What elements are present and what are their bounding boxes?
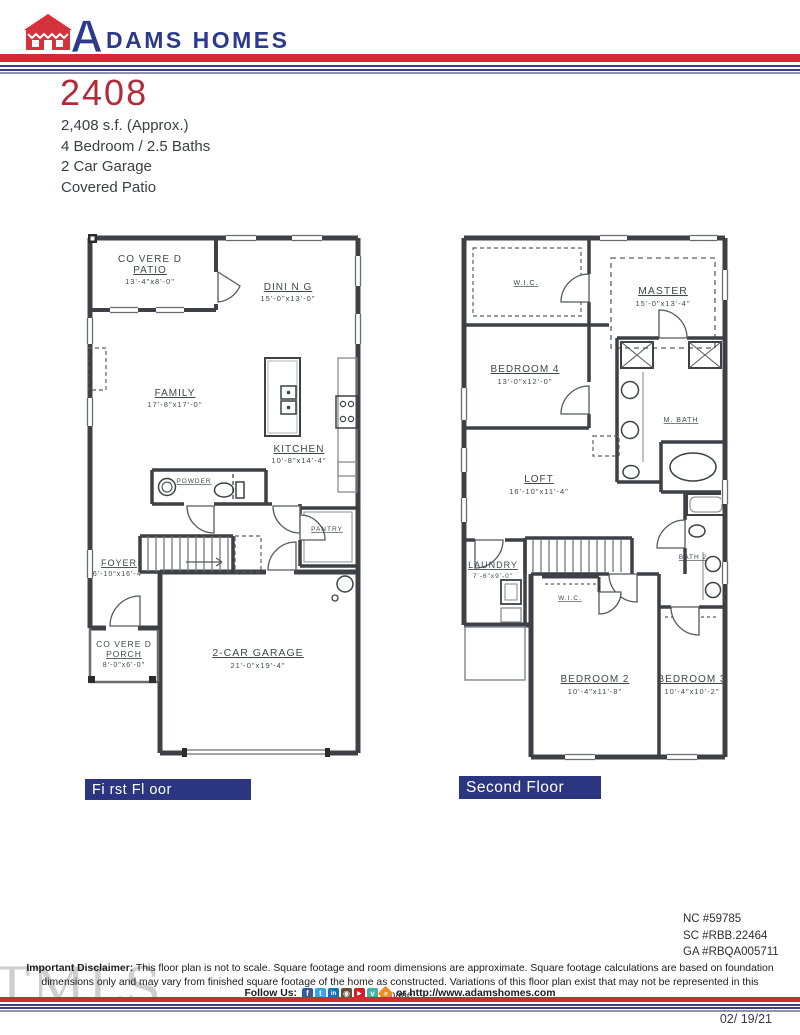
footer-stripes	[0, 997, 800, 1012]
first-floor-windows	[86, 234, 362, 757]
mbath-fixtures	[621, 342, 721, 481]
room-label-family: FAMILY	[155, 388, 196, 399]
first-floor-plan: CO VERE D PATIO 13'-4"x8'-0" DINI N G 15…	[86, 230, 366, 757]
room-label-master: MASTER	[638, 285, 688, 297]
spec-garage: 2 Car Garage	[61, 157, 210, 178]
room-label-bath2: BATH 2	[679, 554, 707, 561]
room-dims-loft: 16'-10"x11'-4"	[509, 487, 569, 496]
room-label-powder: POWDER	[176, 478, 211, 485]
license-numbers: NC #59785 SC #RBB.22464 GA #RBQA005711	[683, 911, 779, 961]
room-label-foyer: FOYER	[101, 558, 137, 568]
room-label-bedroom3: BEDROOM 3	[657, 674, 726, 685]
room-label-porch-2: PORCH	[106, 649, 142, 659]
room-label-garage: 2-CAR GARAGE	[212, 647, 303, 659]
room-label-patio-2: PATIO	[133, 265, 167, 276]
disclaimer-bold: Important Disclaimer:	[26, 963, 133, 974]
room-dims-bedroom2: 10'-4"x11'-8"	[568, 687, 622, 696]
second-floor-label: Second Floor	[466, 779, 564, 797]
second-floor-label-bar: Second Floor	[459, 776, 601, 799]
room-dims-bedroom4: 13'-0"x12'-0"	[498, 377, 553, 386]
license-ga: GA #RBQA005711	[683, 944, 779, 961]
room-dims-laundry: 7'-6"x9'-0"	[473, 573, 513, 580]
room-dims-family: 17'-8"x17'-0"	[148, 400, 203, 409]
room-label-laundry: LAUNDRY	[468, 560, 518, 570]
room-label-wic-master: W.I.C.	[513, 280, 538, 287]
second-floor-stairs	[533, 540, 621, 572]
room-label-kitchen: KITCHEN	[274, 444, 325, 455]
license-sc: SC #RBB.22464	[683, 928, 779, 945]
header-stripes	[0, 54, 800, 74]
first-floor-label: Fi rst Fl oor	[92, 782, 172, 798]
room-label-wic2: W.I.C.	[558, 595, 582, 602]
room-label-loft: LOFT	[524, 474, 554, 485]
second-floor-labels: W.I.C. MASTER 15'-0"x13'-4" BEDROOM 4 13…	[468, 280, 726, 696]
garage-door	[182, 748, 330, 757]
room-label-patio-1: CO VERE D	[118, 254, 182, 265]
room-dims-dining: 15'-0"x13'-0"	[261, 294, 316, 303]
floor-plan-sheet: A DAMS HOMES 2408 2,408 s.f. (Approx.) 4…	[0, 0, 800, 1035]
spec-beds-baths: 4 Bedroom / 2.5 Baths	[61, 137, 210, 158]
room-dims-bedroom3: 10'-4"x10'-2"	[665, 687, 720, 696]
room-label-bedroom2: BEDROOM 2	[560, 674, 629, 685]
second-floor-plan: W.I.C. MASTER 15'-0"x13'-4" BEDROOM 4 13…	[459, 230, 729, 770]
room-label-bedroom4: BEDROOM 4	[490, 364, 559, 375]
revision-date: 02/ 19/21	[720, 1012, 772, 1026]
room-dims-kitchen: 10'-8"x14'-4"	[272, 456, 327, 465]
room-label-mbath: M. BATH	[664, 417, 699, 424]
room-dims-foyer: 6'-10"x16'-4"	[93, 571, 145, 578]
first-floor-label-bar: Fi rst Fl oor	[85, 779, 251, 800]
license-nc: NC #59785	[683, 911, 779, 928]
laundry-fixtures	[501, 580, 521, 622]
room-dims-garage: 21'-0"x19'-4"	[231, 661, 286, 670]
spec-patio: Covered Patio	[61, 178, 210, 199]
room-dims-master: 15'-0"x13'-4"	[636, 299, 691, 308]
brand-letter-a: A	[70, 10, 103, 58]
bath2-fixtures	[687, 494, 725, 600]
spec-sqft: 2,408 s.f. (Approx.)	[61, 116, 210, 137]
water-heater	[332, 576, 353, 601]
adams-homes-logo: A DAMS HOMES	[22, 10, 442, 58]
room-dims-patio: 13'-4"x8'-0"	[125, 277, 175, 286]
plan-number: 2408	[60, 72, 148, 114]
room-label-pantry: PANTRY	[311, 526, 343, 533]
room-label-porch-1: CO VERE D	[96, 639, 152, 649]
room-dims-porch: 8'-0"x6'-0"	[103, 662, 145, 669]
room-label-dining: DINI N G	[264, 282, 313, 293]
brand-text: DAMS HOMES	[106, 27, 289, 53]
plan-specs: 2,408 s.f. (Approx.) 4 Bedroom / 2.5 Bat…	[61, 116, 210, 199]
house-icon	[24, 14, 72, 50]
first-floor-stairs	[148, 536, 228, 572]
